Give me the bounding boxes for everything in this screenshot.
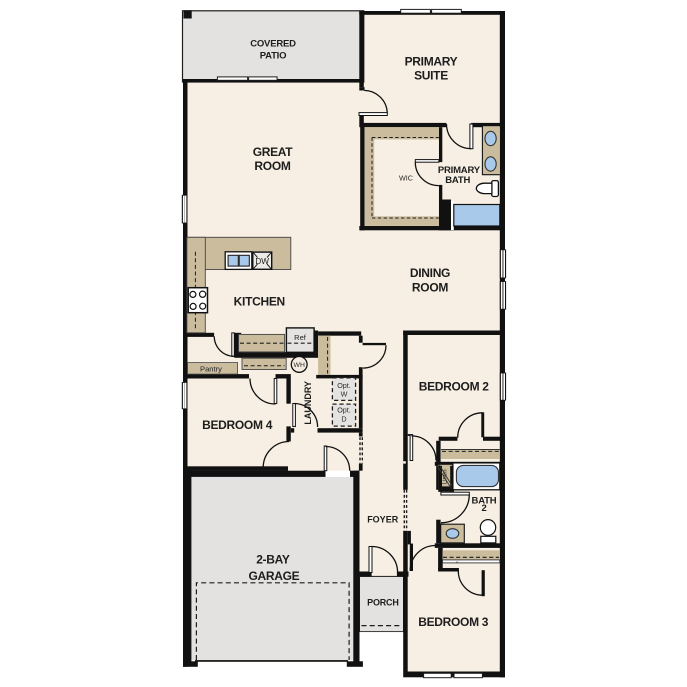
svg-text:2-BAY: 2-BAY: [256, 553, 290, 567]
svg-text:WIC: WIC: [399, 174, 413, 183]
svg-text:D: D: [341, 415, 346, 424]
svg-text:Opt.: Opt.: [337, 405, 351, 414]
svg-text:Ref: Ref: [294, 333, 307, 342]
svg-text:BEDROOM 3: BEDROOM 3: [418, 615, 489, 629]
svg-text:COVERED: COVERED: [250, 39, 296, 50]
svg-text:KITCHEN: KITCHEN: [234, 295, 285, 309]
svg-text:PATIO: PATIO: [260, 51, 287, 62]
svg-text:WH: WH: [294, 362, 305, 369]
svg-text:SUITE: SUITE: [414, 69, 448, 83]
svg-text:W: W: [341, 390, 348, 399]
svg-text:GARAGE: GARAGE: [248, 569, 299, 583]
svg-text:2: 2: [481, 503, 486, 514]
svg-text:BEDROOM 2: BEDROOM 2: [419, 379, 490, 393]
svg-text:GREAT: GREAT: [253, 145, 294, 159]
svg-text:BATH: BATH: [445, 175, 470, 186]
svg-text:FOYER: FOYER: [367, 515, 399, 525]
svg-text:PRIMARY: PRIMARY: [405, 54, 458, 68]
svg-text:DW: DW: [255, 257, 269, 266]
svg-text:PORCH: PORCH: [367, 598, 399, 608]
svg-text:Opt.: Opt.: [337, 381, 351, 390]
svg-text:ROOM: ROOM: [412, 281, 448, 295]
svg-text:ROOM: ROOM: [254, 159, 290, 173]
svg-text:BEDROOM 4: BEDROOM 4: [202, 418, 273, 432]
svg-text:LAUNDRY: LAUNDRY: [303, 381, 313, 425]
svg-text:DINING: DINING: [410, 266, 450, 280]
svg-text:Pantry: Pantry: [200, 365, 222, 374]
